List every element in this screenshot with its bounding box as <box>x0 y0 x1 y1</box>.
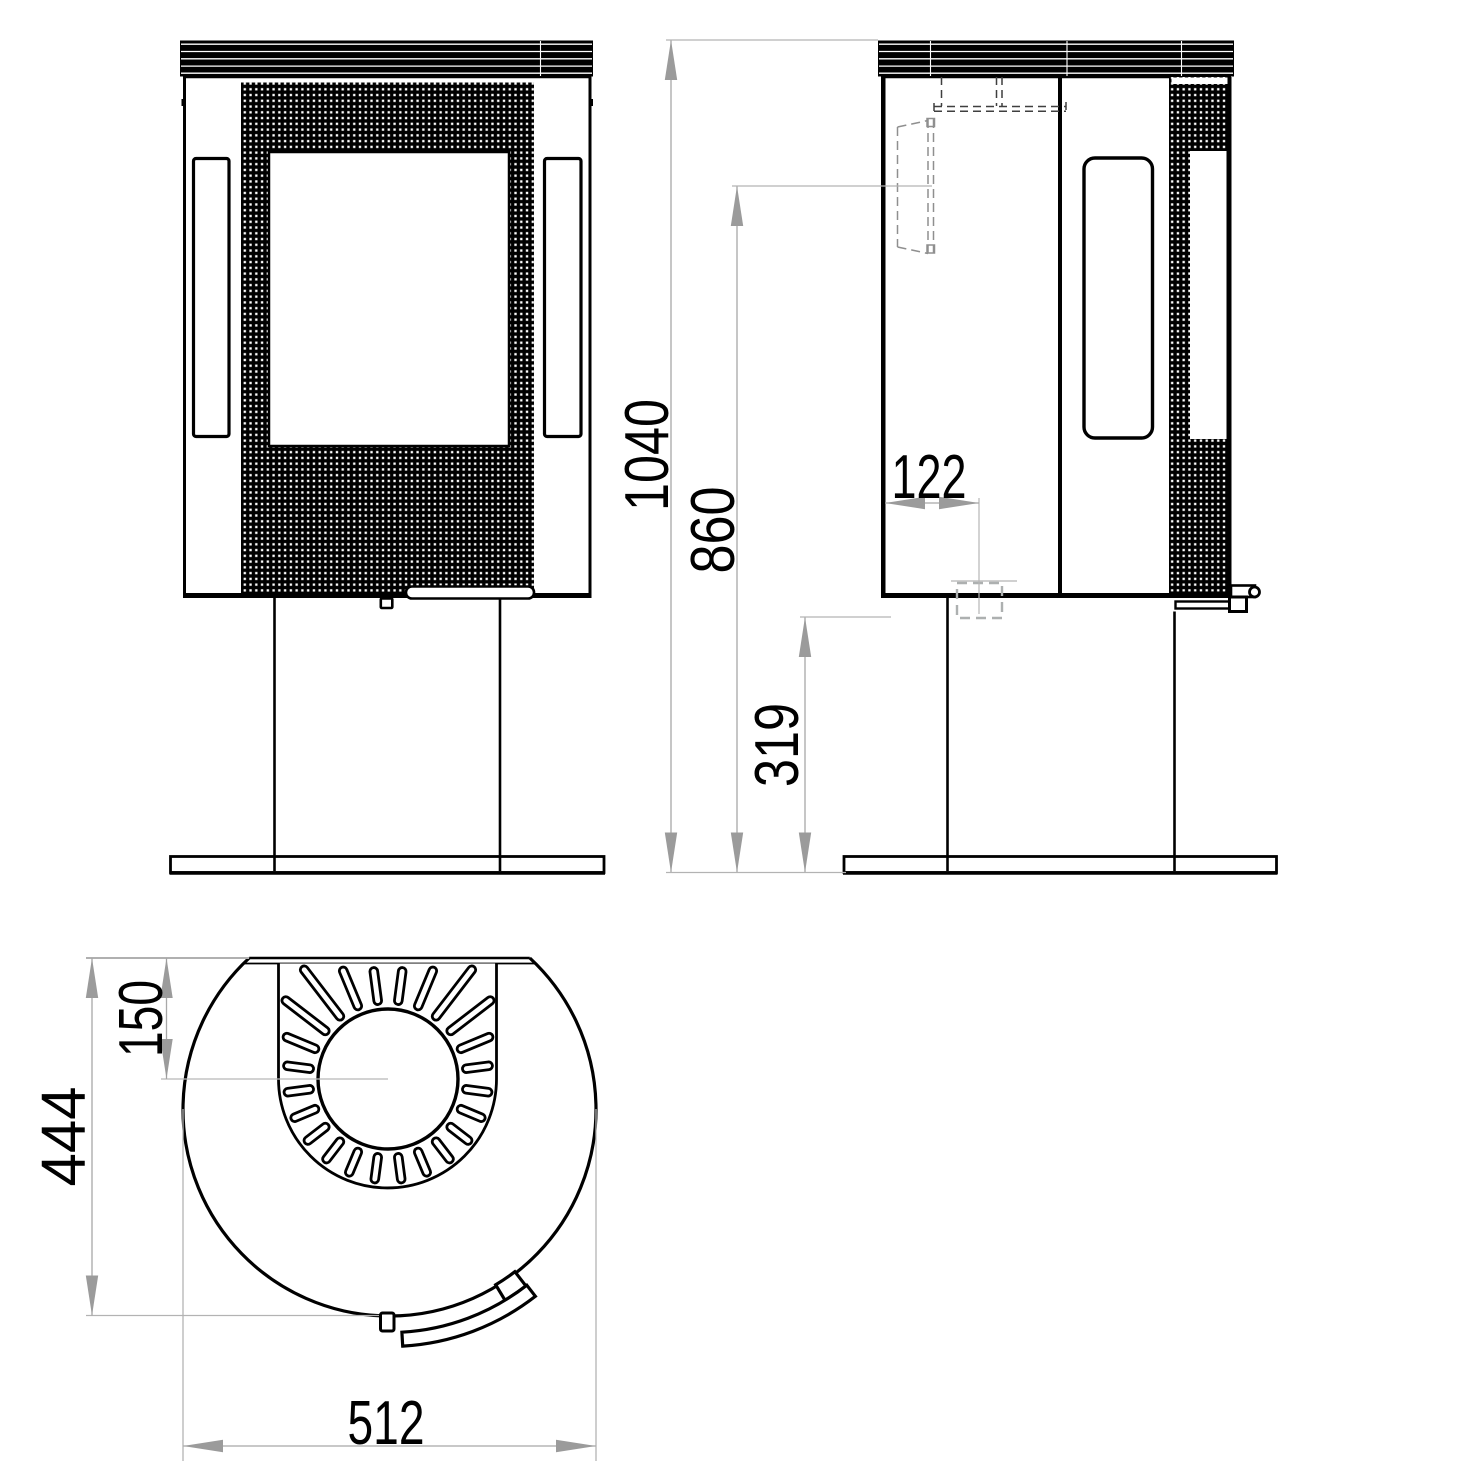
svg-text:444: 444 <box>30 1087 99 1187</box>
svg-text:860: 860 <box>679 487 748 574</box>
svg-text:512: 512 <box>348 1389 425 1458</box>
svg-text:319: 319 <box>743 703 812 787</box>
svg-text:150: 150 <box>107 980 176 1057</box>
svg-text:1040: 1040 <box>613 399 682 511</box>
svg-text:122: 122 <box>892 443 967 512</box>
